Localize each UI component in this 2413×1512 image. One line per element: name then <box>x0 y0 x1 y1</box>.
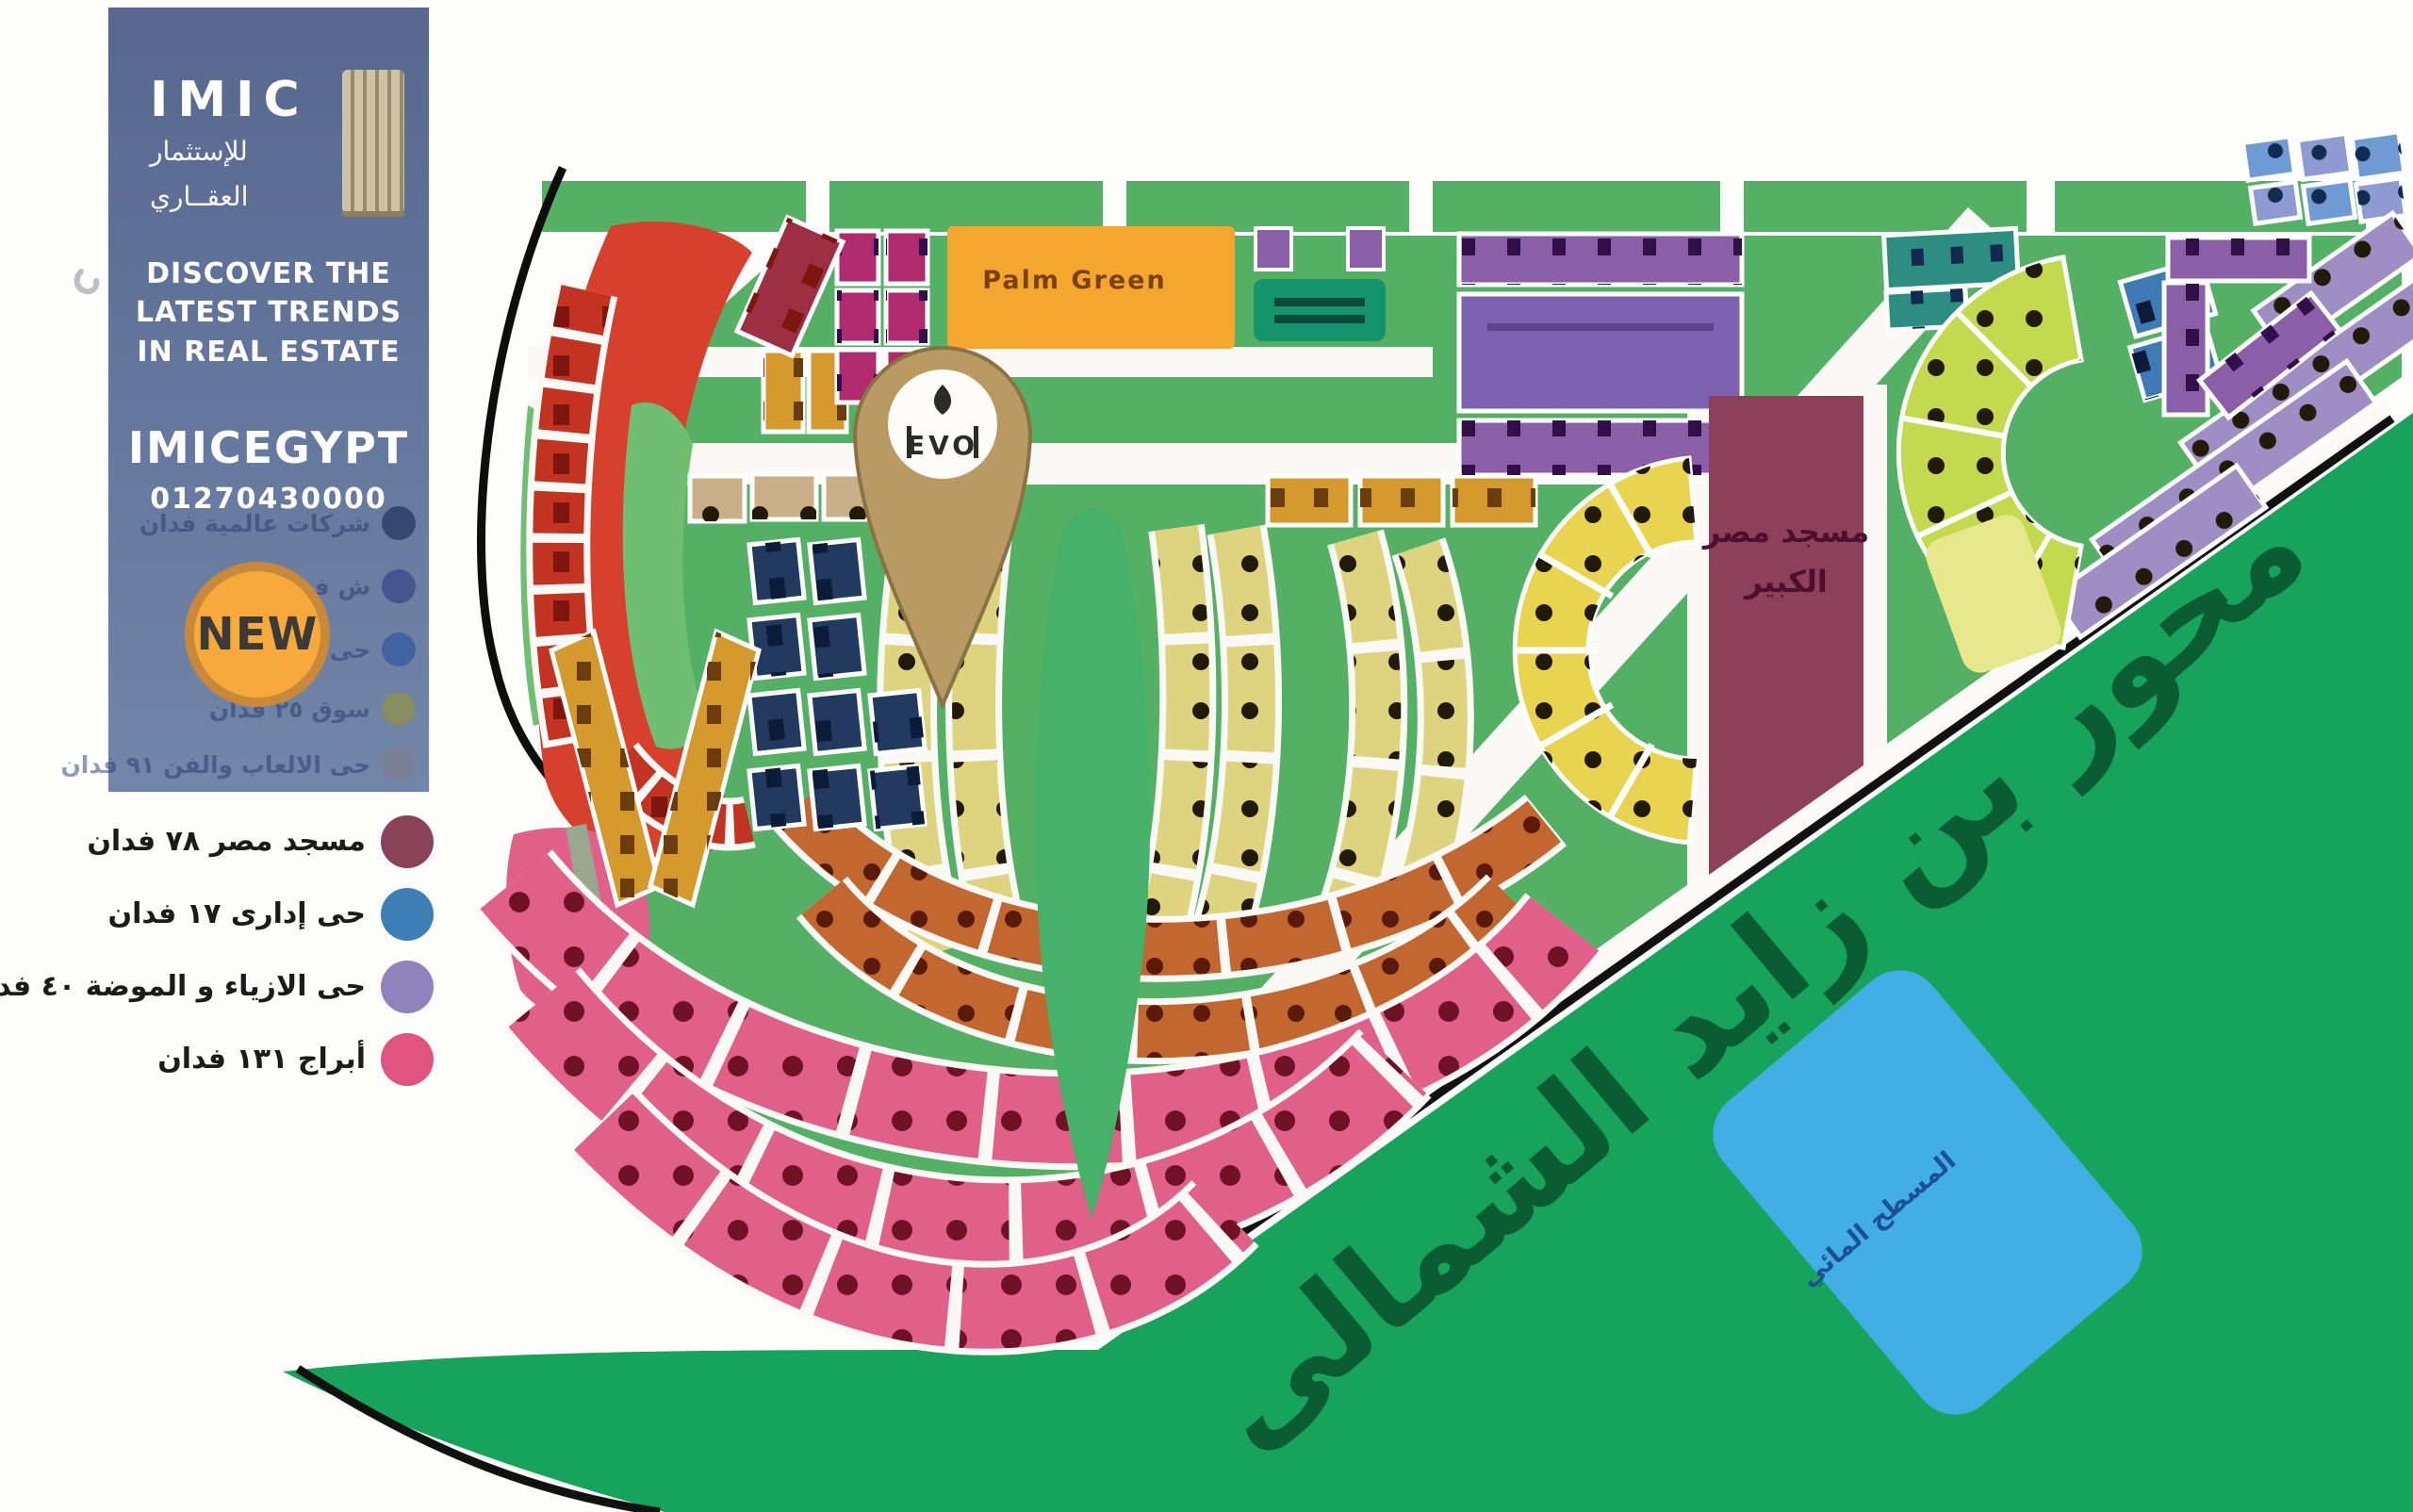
legend-dot <box>381 961 434 1013</box>
tagline: DISCOVER THE LATEST TRENDS IN REAL ESTAT… <box>108 255 429 371</box>
faded-row-dot <box>382 506 416 540</box>
faded-row-dot <box>382 692 416 726</box>
mosque-label-1: مسجد مصر <box>1701 514 1869 550</box>
tagline-line-2: LATEST TRENDS <box>108 293 429 332</box>
pin-logo-text: EVO <box>907 430 978 461</box>
legend-label: حى إدارى ١٧ فدان <box>107 897 366 930</box>
stray-clip-mark <box>74 262 111 304</box>
legend-item: مسجد مصر ٧٨ فدان <box>113 805 434 878</box>
faded-legend-row: شركات عالمية فدان <box>108 502 429 544</box>
legend-label: حى الازياء و الموضة ٤٠ فدان <box>0 970 366 1003</box>
column-icon <box>342 70 404 211</box>
legend-dot <box>381 888 434 941</box>
legend: مسجد مصر ٧٨ فدان حى إدارى ١٧ فدان حى الا… <box>113 805 434 1095</box>
legend-dot <box>381 815 434 868</box>
district-purple <box>1459 234 1742 475</box>
tagline-line-1: DISCOVER THE <box>108 255 429 293</box>
faded-row-dot <box>382 633 416 666</box>
palm-green-label: Palm Green <box>982 266 1166 295</box>
legend-item: حى الازياء و الموضة ٤٠ فدان <box>113 950 434 1023</box>
legend-label: أبراج ١٣١ فدان <box>157 1043 366 1076</box>
faded-legend-row: حى الالعاب والفن ٩١ فدان <box>108 744 429 785</box>
brand-handle: IMICEGYPT <box>108 422 429 473</box>
new-badge-label: NEW <box>197 608 319 661</box>
faded-row-dot <box>382 748 416 781</box>
legend-item: أبراج ١٣١ فدان <box>113 1023 434 1095</box>
faded-row-label: شركات عالمية فدان <box>140 510 370 537</box>
poster: المسطح المائي محور بن زايد الشمالى Palm … <box>0 0 2413 1512</box>
legend-dot <box>381 1033 434 1086</box>
brand-logo: IMIC للإستثمار العقــاري <box>108 8 429 215</box>
legend-label: مسجد مصر ٧٨ فدان <box>87 825 366 858</box>
new-badge: NEW <box>185 562 330 707</box>
tagline-line-3: IN REAL ESTATE <box>108 333 429 371</box>
legend-item: حى إدارى ١٧ فدان <box>113 878 434 950</box>
faded-row-dot <box>382 569 416 603</box>
top-green-strips <box>542 181 2366 232</box>
mosque-label-2: الكبير <box>1743 564 1828 600</box>
brand-panel: IMIC للإستثمار العقــاري DISCOVER THE LA… <box>108 8 429 792</box>
faded-row-label: حى الالعاب والفن ٩١ فدان <box>60 751 370 779</box>
palm-green-block: Palm Green <box>947 226 1235 349</box>
